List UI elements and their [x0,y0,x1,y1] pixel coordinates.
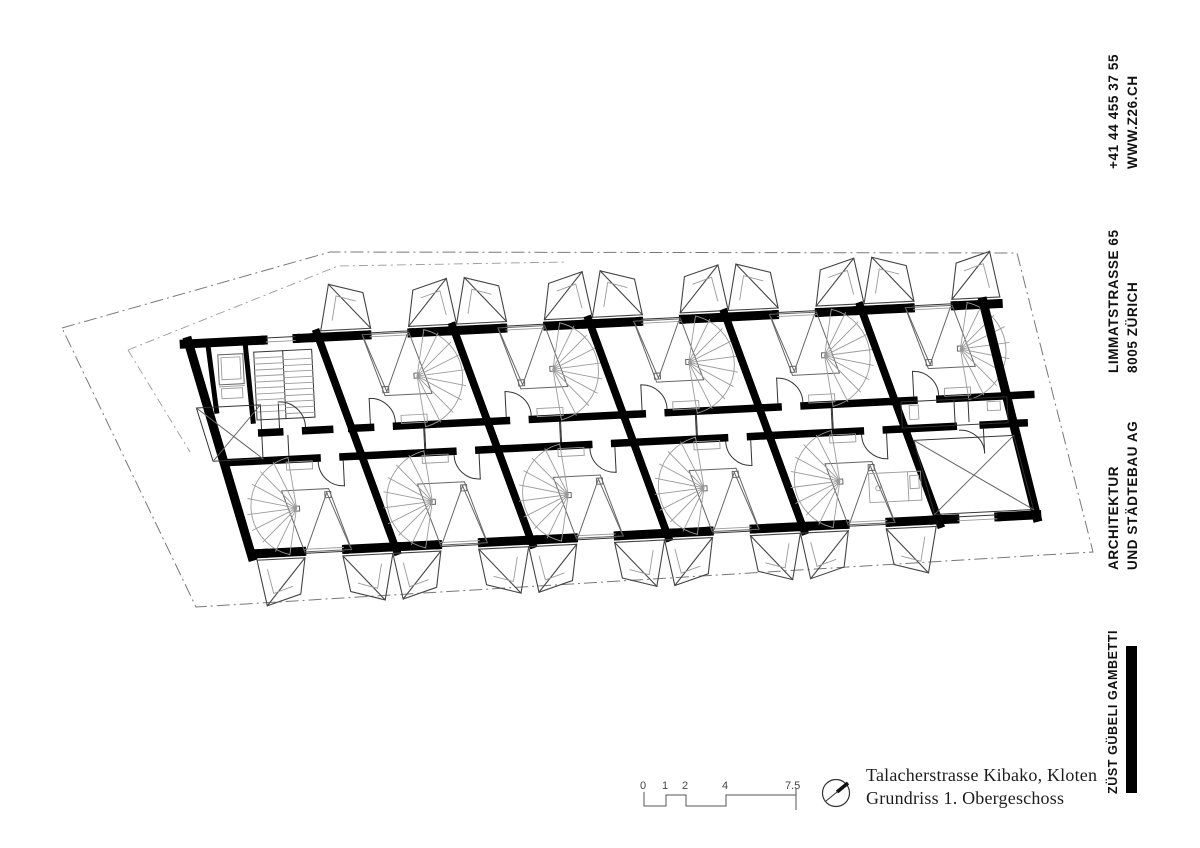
drawing-sheet: 0 1 2 4 7.5 +41 44 455 37 55 WWW.Z26.CH … [0,0,1200,848]
scale-bar: 0 1 2 4 7.5 [640,780,800,810]
scale-label-7-5: 7.5 [785,780,800,792]
unit-bottom-4 [627,309,808,587]
firm-name-block: ZÜST GÜBELI GAMBETTI [1104,630,1123,794]
address-street: LIMMATSTRASSE 65 [1104,229,1123,373]
scale-label-2: 2 [682,780,688,792]
firm-type-line1: ARCHITEKTUR [1104,421,1123,570]
firm-name: ZÜST GÜBELI GAMBETTI [1104,630,1123,794]
drawing-title: Grundriss 1. Obergeschoss [866,787,1097,810]
stair-core [184,333,336,560]
unit-top-3 [584,263,765,541]
scale-label-1: 1 [662,780,668,792]
brand-bar [1126,646,1137,793]
floor-plan-canvas: 0 1 2 4 7.5 [0,0,1200,848]
unit-bottom-3 [492,316,673,594]
unit-top-5 [856,250,1037,528]
scale-label-4: 4 [722,780,728,792]
unit-bottom-2 [356,323,537,601]
right-gable [860,300,1037,528]
address-city: 8005 ZÜRICH [1123,229,1142,373]
contact-block: +41 44 455 37 55 WWW.Z26.CH [1104,54,1142,169]
bed [869,471,922,503]
firm-type-line2: UND STÄDTEBAU AG [1123,421,1142,570]
building-plan [182,250,1040,610]
unit-bottom-5 [763,302,944,580]
project-title: Talacherstrasse Kibako, Kloten [866,764,1097,787]
title-block: Talacherstrasse Kibako, Kloten Grundriss… [866,764,1097,809]
unit-top-4 [720,256,901,534]
north-arrow-icon [823,780,850,807]
straight-stair [254,349,315,420]
contact-phone: +41 44 455 37 55 [1104,54,1123,169]
address-block: LIMMATSTRASSE 65 8005 ZÜRICH [1104,229,1142,373]
scale-label-0: 0 [640,780,646,792]
contact-web: WWW.Z26.CH [1123,54,1142,169]
firm-type-block: ARCHITEKTUR UND STÄDTEBAU AG [1104,421,1142,570]
unit-top-1 [312,277,493,555]
unit-top-2 [448,270,629,548]
elevator-shaft [218,354,245,399]
